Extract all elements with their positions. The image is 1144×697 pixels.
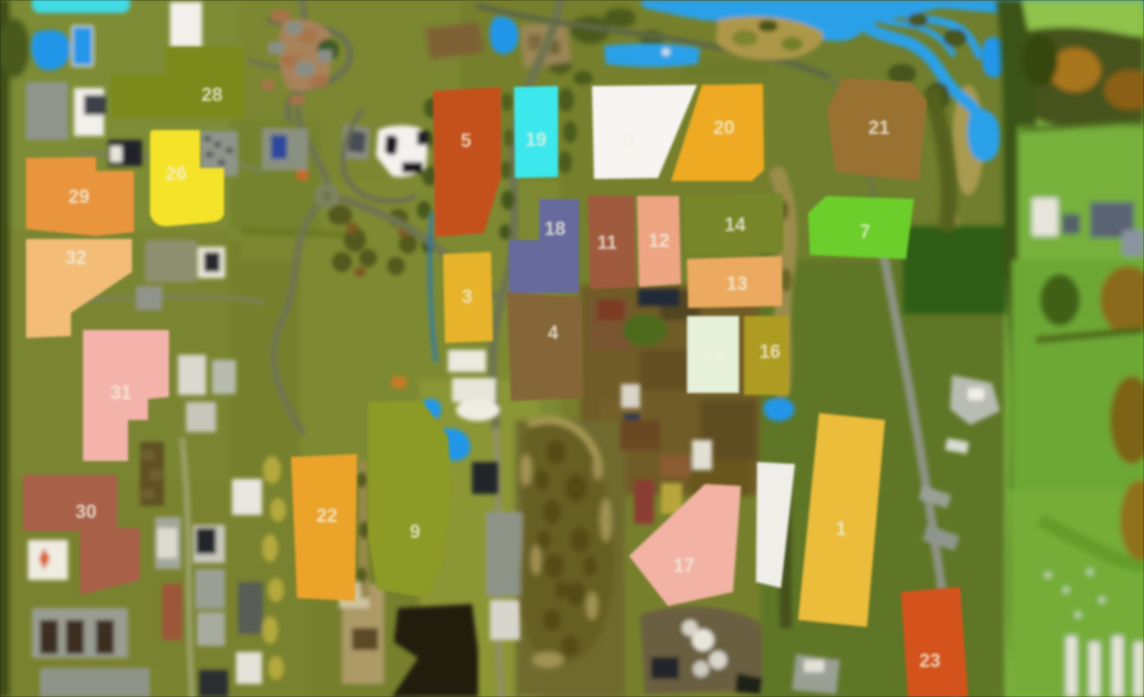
- svg-text:24: 24: [758, 510, 780, 531]
- svg-text:14: 14: [724, 215, 746, 236]
- svg-text:29: 29: [68, 187, 89, 208]
- svg-text:16: 16: [759, 342, 780, 363]
- svg-text:21: 21: [868, 118, 890, 139]
- svg-text:28: 28: [201, 85, 222, 106]
- svg-text:11: 11: [597, 233, 618, 254]
- svg-text:9: 9: [410, 522, 421, 543]
- svg-text:31: 31: [110, 383, 132, 404]
- svg-text:5: 5: [461, 131, 472, 152]
- svg-text:22: 22: [316, 506, 337, 527]
- svg-text:20: 20: [713, 118, 734, 139]
- svg-text:3: 3: [462, 287, 473, 308]
- svg-text:1: 1: [836, 519, 847, 540]
- svg-text:23: 23: [919, 651, 940, 672]
- svg-text:17: 17: [673, 556, 694, 577]
- svg-text:0: 0: [624, 130, 635, 151]
- svg-text:26: 26: [165, 164, 186, 185]
- svg-text:30: 30: [75, 502, 96, 523]
- svg-text:12: 12: [648, 231, 669, 252]
- svg-text:32: 32: [65, 248, 86, 269]
- svg-text:19: 19: [525, 130, 546, 151]
- svg-text:4: 4: [548, 323, 559, 344]
- svg-text:13: 13: [726, 274, 747, 295]
- svg-text:7: 7: [860, 222, 871, 243]
- svg-text:15: 15: [703, 346, 725, 367]
- svg-text:18: 18: [544, 219, 565, 240]
